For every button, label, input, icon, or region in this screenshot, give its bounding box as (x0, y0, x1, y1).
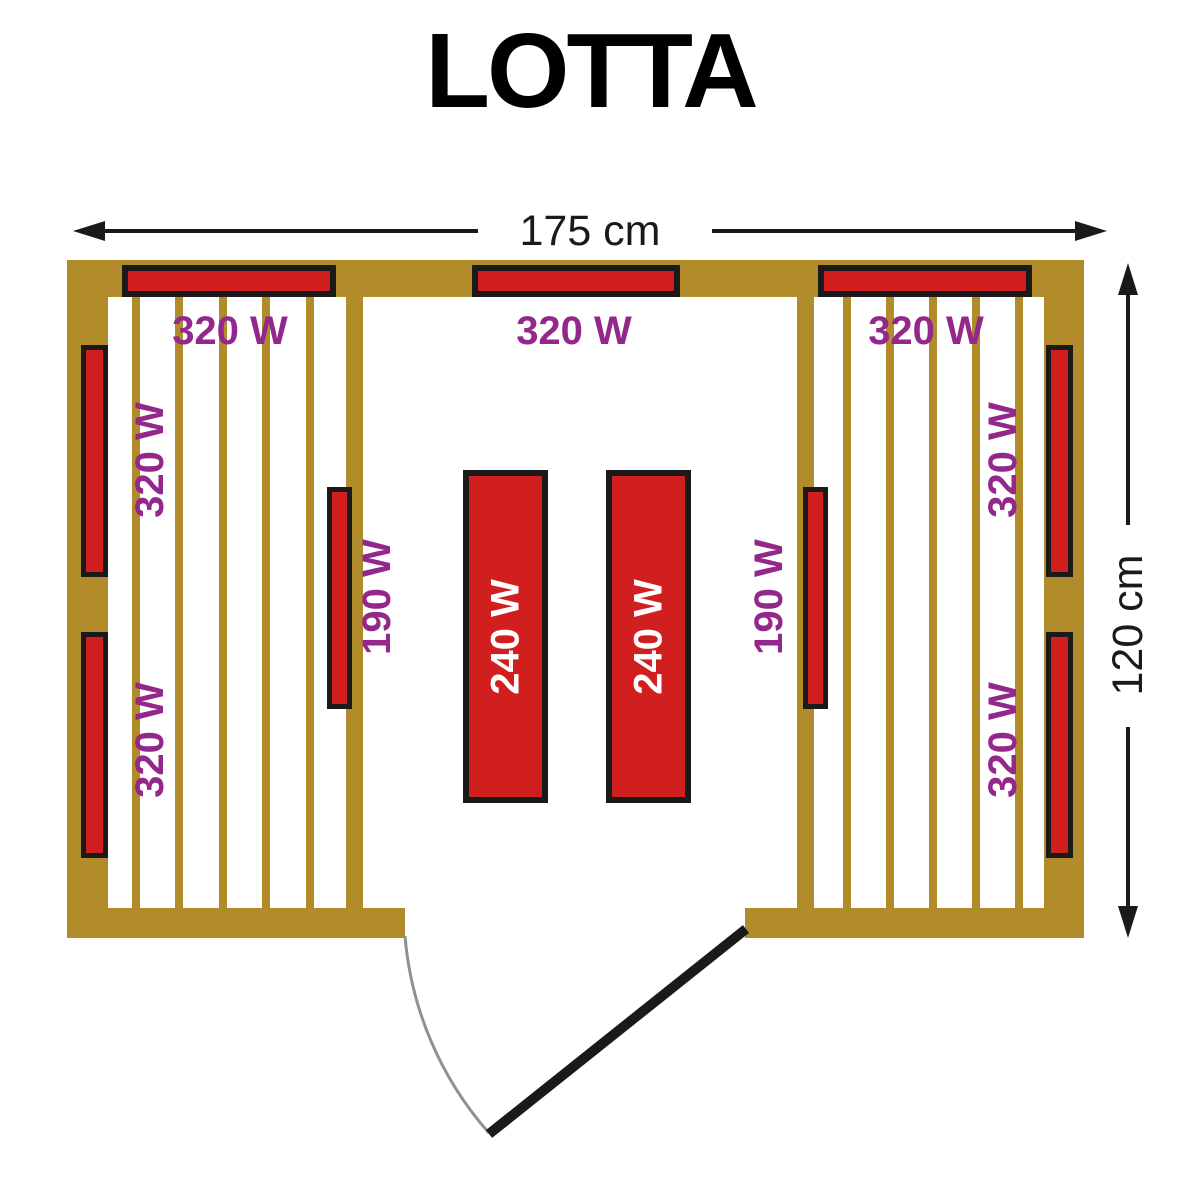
width-dimension-line-left (103, 229, 478, 233)
center-right-bench-heater: 240 W (606, 470, 691, 803)
left-wall-lower-heater (81, 632, 108, 858)
left-wall-upper-heater (81, 345, 108, 577)
left-partition-heater (327, 487, 352, 709)
bench-slat (929, 297, 937, 908)
sauna-layout-diagram: LOTTA 175 cm 120 cm (0, 0, 1181, 1181)
door-swing-arc (405, 936, 489, 1133)
heater-wattage-label: 320 W (130, 307, 330, 355)
heater-wattage-label: 320 W (474, 307, 674, 355)
bench-slat (843, 297, 851, 908)
heater-wattage-label: 320 W (126, 650, 174, 830)
top-center-heater (472, 265, 680, 297)
heater-wattage-label: 320 W (979, 650, 1027, 830)
center-left-bench-heater: 240 W (463, 470, 548, 803)
right-wall-lower-heater (1046, 632, 1073, 858)
right-partition-heater (803, 487, 828, 709)
bench-heater-wattage-label: 240 W (626, 579, 671, 695)
heater-wattage-label: 320 W (979, 370, 1027, 550)
heater-wattage-label: 190 W (745, 507, 793, 687)
height-arrow-down-icon (1118, 906, 1138, 938)
height-arrow-up-icon (1118, 263, 1138, 295)
width-arrow-right-icon (1075, 221, 1107, 241)
right-wall-upper-heater (1046, 345, 1073, 577)
wall-bottom-right (745, 908, 1084, 938)
heater-wattage-label: 320 W (126, 370, 174, 550)
door-panel (489, 929, 746, 1134)
height-dimension-line-lower (1126, 727, 1130, 910)
width-arrow-left-icon (73, 221, 105, 241)
top-right-heater (818, 265, 1032, 297)
bench-slat (175, 297, 183, 908)
bench-slat (219, 297, 227, 908)
heater-wattage-label: 320 W (826, 307, 1026, 355)
width-dimension-line-right (712, 229, 1075, 233)
height-dimension-line-upper (1126, 293, 1130, 525)
heater-wattage-label: 190 W (353, 507, 401, 687)
width-dimension-label: 175 cm (470, 206, 710, 256)
height-dimension-label: 120 cm (1104, 535, 1152, 715)
product-title: LOTTA (0, 16, 1181, 127)
top-left-heater (122, 265, 336, 297)
bench-slat (886, 297, 894, 908)
bench-heater-wattage-label: 240 W (483, 579, 528, 695)
bench-slat (306, 297, 314, 908)
bench-slat (262, 297, 270, 908)
